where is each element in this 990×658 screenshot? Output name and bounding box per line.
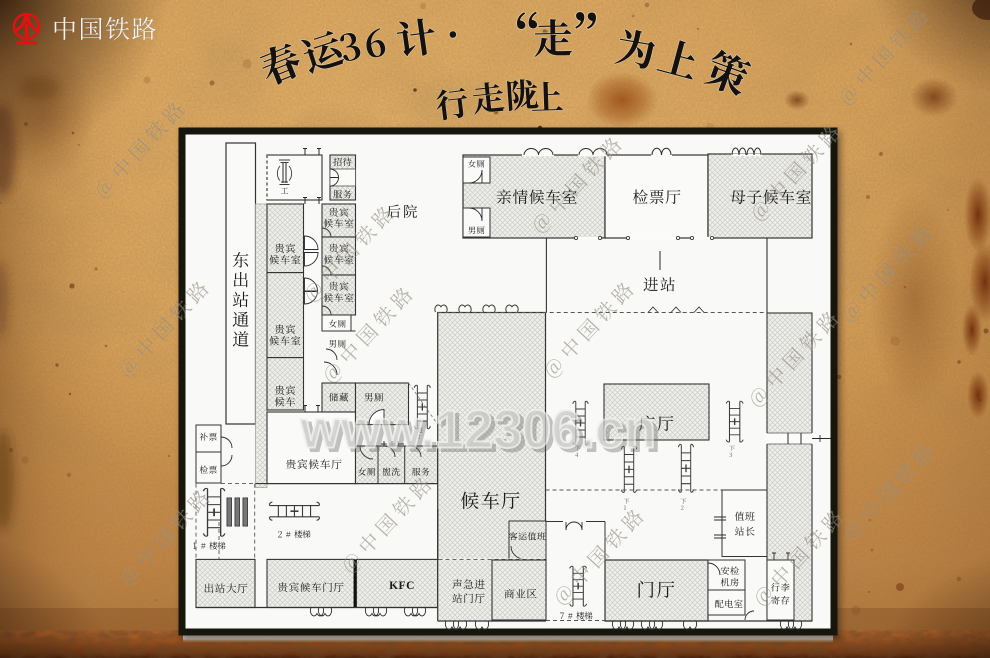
svg-text:KFC: KFC	[389, 580, 415, 592]
svg-text:www.12306.cn: www.12306.cn	[299, 400, 656, 460]
